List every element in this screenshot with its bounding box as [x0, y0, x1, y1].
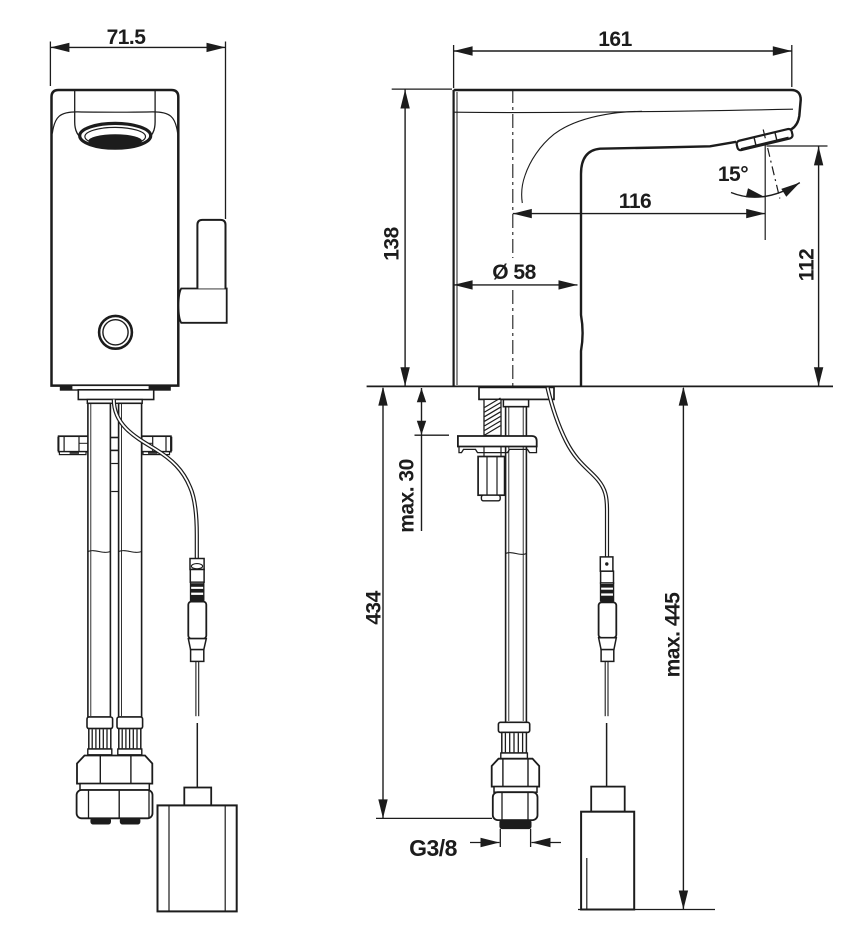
- svg-text:71.5: 71.5: [107, 26, 147, 49]
- svg-text:434: 434: [363, 590, 386, 624]
- svg-text:138: 138: [381, 226, 404, 260]
- svg-text:161: 161: [598, 28, 632, 51]
- svg-text:112: 112: [796, 249, 819, 281]
- svg-text:G3/8: G3/8: [409, 835, 458, 861]
- svg-text:max. 445: max. 445: [662, 592, 685, 678]
- svg-text:max. 30: max. 30: [396, 459, 419, 533]
- svg-text:15°: 15°: [718, 163, 748, 186]
- svg-text:Ø 58: Ø 58: [492, 261, 536, 284]
- svg-text:116: 116: [619, 190, 651, 213]
